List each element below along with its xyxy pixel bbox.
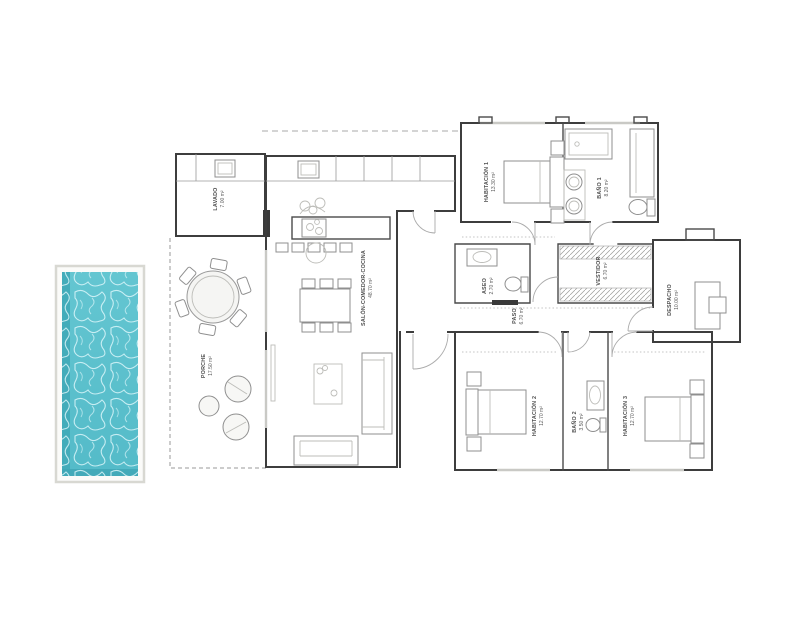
svg-text:12.70 m²: 12.70 m² [630, 406, 636, 426]
bed-mattress [645, 397, 691, 441]
svg-text:PORCHE: PORCHE [201, 354, 207, 378]
nightstand [467, 372, 481, 386]
svg-text:BAÑO 2: BAÑO 2 [571, 411, 578, 433]
shower-tray [565, 129, 612, 159]
svg-text:HABITACIÓN 1: HABITACIÓN 1 [482, 162, 490, 202]
svg-text:LAVADO: LAVADO [213, 187, 219, 210]
dining-table [300, 289, 350, 322]
toilet-bowl [586, 419, 600, 432]
svg-text:ASEO: ASEO [482, 278, 488, 294]
bed-mattress [504, 161, 550, 203]
porch-lounge-set [199, 376, 251, 440]
bed-mattress [478, 390, 526, 434]
coffee-table [314, 364, 342, 404]
stool [308, 243, 320, 252]
toilet-bowl [629, 200, 647, 215]
label-habitacion1: HABITACIÓN 1 13.30 m² [482, 162, 497, 202]
toilet-tank [600, 418, 606, 432]
door-bano1 [590, 222, 613, 245]
toilet-bowl [505, 277, 521, 291]
label-despacho: DESPACHO 10.00 m² [667, 284, 680, 316]
floor-plan-drawing: LAVADO 7.00 m² SALÓN-COMEDOR-COCINA 48.7… [0, 0, 800, 640]
desk-chair [709, 297, 726, 313]
svg-text:2.70 m²: 2.70 m² [489, 277, 495, 294]
room-habitacion1 [461, 117, 658, 223]
svg-text:DESPACHO: DESPACHO [667, 284, 673, 316]
bar-stools [276, 243, 352, 252]
door-habitacion1 [512, 222, 535, 245]
lounge-chair [225, 376, 251, 402]
label-habitacion2: HABITACIÓN 2 12.70 m² [530, 396, 545, 436]
kitchen [266, 156, 455, 263]
living-area [294, 353, 392, 465]
svg-text:3.50 m²: 3.50 m² [579, 413, 585, 430]
label-lavado: LAVADO 7.00 m² [213, 187, 226, 210]
room-porche [170, 238, 266, 468]
swimming-pool [56, 266, 144, 482]
room-bano1 [564, 129, 655, 220]
door-vestidor [533, 277, 558, 302]
sofa-vertical [362, 353, 392, 434]
svg-text:PASO: PASO [512, 308, 518, 324]
pool-caustics-texture [62, 272, 138, 476]
door-bano2 [568, 332, 590, 352]
dining-chair [338, 279, 351, 288]
svg-text:HABITACIÓN 3: HABITACIÓN 3 [621, 396, 629, 436]
stool [340, 243, 352, 252]
toilet [629, 199, 655, 216]
svg-text:48.70 m²: 48.70 m² [368, 278, 374, 298]
plant-decor [300, 198, 325, 214]
toilet-tank [521, 277, 528, 292]
svg-text:17.50 m²: 17.50 m² [208, 356, 214, 376]
label-porche: PORCHE 17.50 m² [201, 354, 214, 378]
toilet-tank [647, 199, 655, 216]
washbasin [566, 174, 582, 190]
dining-chair [338, 323, 351, 332]
label-salon: SALÓN-COMEDOR-COCINA 48.70 m² [359, 250, 374, 326]
door-salon-hall [413, 211, 435, 233]
label-vestidor: VESTIDOR 6.70 m² [596, 256, 609, 285]
svg-text:6.70 m²: 6.70 m² [603, 262, 609, 279]
stool [276, 243, 288, 252]
nightstand [690, 380, 704, 394]
svg-text:13.30 m²: 13.30 m² [491, 172, 497, 192]
radiator [271, 345, 275, 401]
bed-1 [504, 141, 564, 223]
svg-text:BAÑO 1: BAÑO 1 [596, 177, 603, 199]
bath-cabinet [630, 129, 654, 197]
aseo-sliding-door [492, 300, 518, 305]
label-aseo: ASEO 2.70 m² [482, 277, 495, 294]
door-despacho [628, 307, 653, 331]
door-habitacion3 [612, 332, 637, 357]
svg-text:SALÓN-COMEDOR-COCINA: SALÓN-COMEDOR-COCINA [359, 250, 367, 326]
svg-text:12.70 m²: 12.70 m² [539, 406, 545, 426]
porch-chair [199, 323, 216, 336]
porch-chair [210, 258, 227, 271]
door-entry [413, 334, 448, 369]
dining-chair [320, 323, 333, 332]
kitchen-counter [266, 156, 455, 181]
room-aseo [455, 244, 530, 305]
dining-set [300, 279, 351, 332]
label-bano1: BAÑO 1 8.20 m² [596, 177, 610, 199]
dining-chair [302, 279, 315, 288]
label-habitacion3: HABITACIÓN 3 12.70 m² [621, 396, 636, 436]
bed-headboard [550, 157, 564, 207]
label-bano2: BAÑO 2 3.50 m² [571, 411, 585, 433]
nightstand [690, 444, 704, 458]
round-table [187, 271, 239, 323]
svg-text:7.00 m²: 7.00 m² [220, 190, 226, 207]
wardrobe-hatch [560, 288, 651, 301]
room-habitacion3 [645, 380, 704, 458]
door-habitacion2 [538, 332, 562, 357]
label-paso: PASO 6.70 m² [512, 307, 525, 324]
nightstand [467, 437, 481, 451]
washbasin [566, 198, 582, 214]
svg-text:VESTIDOR: VESTIDOR [596, 256, 602, 285]
floor-plan-page: LAVADO 7.00 m² SALÓN-COMEDOR-COCINA 48.7… [0, 0, 800, 640]
dining-chair [302, 323, 315, 332]
svg-text:8.20 m²: 8.20 m² [604, 179, 610, 196]
nightstand [551, 209, 564, 223]
cooktop [302, 219, 326, 237]
plant-on-table [317, 366, 337, 397]
sofa-horizontal [294, 436, 358, 465]
svg-text:6.70 m²: 6.70 m² [519, 307, 525, 324]
wardrobe-hatch [560, 246, 651, 259]
svg-text:10.00 m²: 10.00 m² [674, 290, 680, 310]
svg-text:HABITACIÓN 2: HABITACIÓN 2 [530, 396, 538, 436]
porch-table-set [175, 258, 252, 336]
bed-headboard [466, 389, 478, 435]
chimney [686, 229, 714, 240]
room-habitacion2 [466, 372, 526, 451]
nightstand [551, 141, 564, 155]
room-bano2 [586, 381, 606, 432]
dining-chair [320, 279, 333, 288]
stool [292, 243, 304, 252]
side-table [199, 396, 219, 416]
bed-headboard [691, 395, 704, 443]
